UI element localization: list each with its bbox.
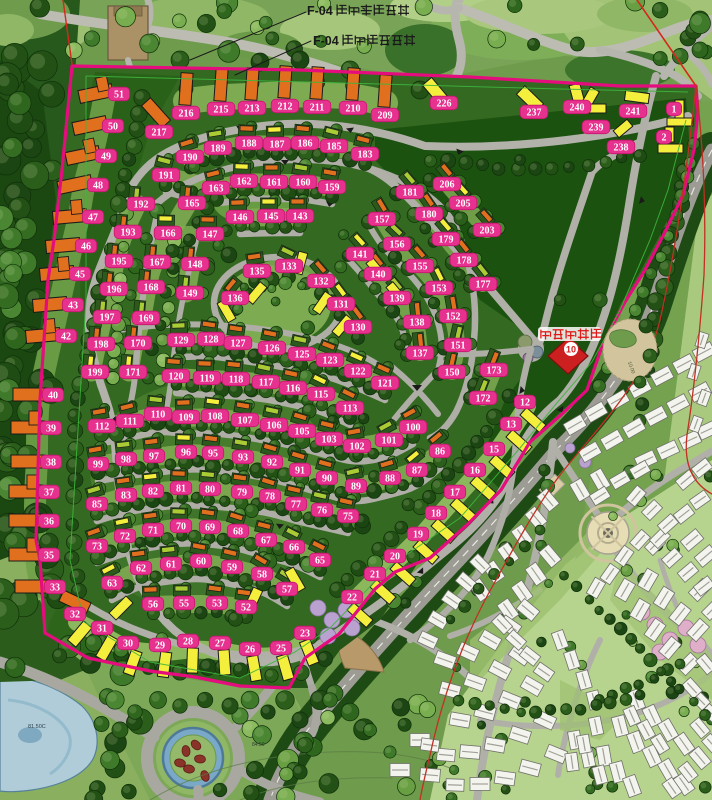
- svg-text:140: 140: [371, 269, 386, 280]
- svg-text:69: 69: [205, 522, 215, 533]
- svg-text:82: 82: [148, 486, 158, 497]
- svg-text:48: 48: [93, 180, 103, 191]
- svg-text:190: 190: [183, 152, 198, 163]
- svg-text:151: 151: [451, 340, 466, 351]
- svg-text:116: 116: [286, 383, 300, 394]
- svg-text:F-04: F-04: [307, 4, 333, 18]
- svg-text:213: 213: [245, 103, 260, 114]
- svg-text:156: 156: [390, 239, 405, 250]
- svg-text:123: 123: [323, 355, 338, 366]
- svg-text:197: 197: [100, 312, 115, 323]
- svg-text:30: 30: [123, 638, 133, 649]
- svg-text:91: 91: [295, 465, 305, 476]
- svg-text:110: 110: [151, 409, 165, 420]
- svg-text:35: 35: [44, 550, 54, 561]
- svg-text:50: 50: [108, 121, 118, 132]
- svg-text:37: 37: [44, 487, 54, 498]
- svg-text:189: 189: [211, 143, 226, 154]
- svg-text:29: 29: [155, 640, 165, 651]
- svg-text:141: 141: [353, 249, 368, 260]
- svg-text:117: 117: [259, 377, 273, 388]
- svg-text:17: 17: [450, 487, 460, 498]
- svg-text:20: 20: [390, 551, 400, 562]
- svg-text:168: 168: [144, 282, 159, 293]
- svg-text:F-04: F-04: [313, 34, 339, 48]
- svg-text:171: 171: [126, 367, 141, 378]
- svg-text:47: 47: [88, 212, 98, 223]
- svg-text:205: 205: [456, 198, 471, 209]
- svg-text:210: 210: [346, 103, 361, 114]
- svg-text:38: 38: [46, 457, 56, 468]
- svg-text:139: 139: [390, 293, 405, 304]
- svg-text:206: 206: [440, 179, 455, 190]
- svg-text:193: 193: [121, 227, 136, 238]
- svg-text:238: 238: [614, 142, 629, 153]
- svg-text:191: 191: [159, 170, 174, 181]
- svg-text:28: 28: [183, 636, 193, 647]
- svg-text:162: 162: [237, 176, 252, 187]
- svg-text:1: 1: [672, 104, 677, 115]
- svg-text:135: 135: [250, 266, 265, 277]
- svg-text:105: 105: [295, 426, 310, 437]
- svg-text:81: 81: [176, 483, 186, 494]
- svg-text:112: 112: [95, 421, 109, 432]
- svg-text:217: 217: [152, 127, 167, 138]
- svg-text:130: 130: [351, 322, 366, 333]
- svg-text:75: 75: [343, 511, 353, 522]
- svg-text:133: 133: [282, 261, 297, 272]
- svg-text:125: 125: [295, 349, 310, 360]
- svg-text:53: 53: [212, 598, 222, 609]
- svg-text:109: 109: [179, 412, 194, 423]
- svg-text:26: 26: [245, 644, 255, 655]
- svg-text:149: 149: [183, 288, 198, 299]
- svg-text:161: 161: [267, 177, 282, 188]
- svg-text:107: 107: [238, 415, 253, 426]
- svg-text:66: 66: [289, 542, 299, 553]
- svg-text:113: 113: [343, 403, 357, 414]
- svg-text:155: 155: [413, 261, 428, 272]
- svg-text:150: 150: [445, 367, 460, 378]
- svg-text:40: 40: [48, 390, 58, 401]
- svg-text:63: 63: [107, 578, 117, 589]
- svg-text:192: 192: [134, 199, 149, 210]
- svg-text:32: 32: [70, 609, 80, 620]
- svg-text:78: 78: [265, 491, 275, 502]
- svg-text:42: 42: [61, 331, 71, 342]
- svg-text:15: 15: [489, 444, 499, 455]
- svg-text:138: 138: [410, 317, 425, 328]
- svg-text:203: 203: [480, 225, 495, 236]
- svg-text:126: 126: [265, 343, 280, 354]
- svg-text:137: 137: [413, 348, 428, 359]
- svg-text:25: 25: [276, 643, 286, 654]
- svg-text:13: 13: [506, 419, 516, 430]
- svg-text:80: 80: [205, 484, 215, 495]
- svg-text:195: 195: [112, 256, 127, 267]
- svg-text:179: 179: [439, 234, 454, 245]
- svg-text:185: 185: [327, 141, 342, 152]
- svg-text:169: 169: [139, 313, 154, 324]
- svg-text:148: 148: [188, 259, 203, 270]
- svg-text:95: 95: [208, 448, 218, 459]
- svg-text:216: 216: [179, 108, 194, 119]
- svg-text:186: 186: [298, 138, 313, 149]
- svg-text:92: 92: [267, 457, 277, 468]
- svg-text:198: 198: [94, 339, 109, 350]
- svg-text:98: 98: [121, 454, 131, 465]
- svg-text:27: 27: [215, 638, 225, 649]
- svg-text:128: 128: [204, 334, 219, 345]
- svg-text:55: 55: [179, 598, 189, 609]
- svg-text:196: 196: [107, 284, 122, 295]
- svg-text:178: 178: [457, 255, 472, 266]
- svg-text:119: 119: [200, 373, 214, 384]
- svg-text:122: 122: [351, 366, 366, 377]
- svg-text:212: 212: [278, 101, 293, 112]
- svg-text:58: 58: [257, 569, 267, 580]
- svg-text:106: 106: [267, 420, 282, 431]
- svg-text:180: 180: [422, 209, 437, 220]
- svg-text:103: 103: [322, 434, 337, 445]
- svg-text:172: 172: [476, 393, 491, 404]
- svg-text:68: 68: [233, 526, 243, 537]
- svg-text:61: 61: [166, 559, 176, 570]
- svg-text:49: 49: [101, 151, 111, 162]
- svg-text:167: 167: [150, 257, 165, 268]
- svg-text:100: 100: [406, 422, 421, 433]
- svg-text:145: 145: [264, 211, 279, 222]
- svg-text:2: 2: [662, 132, 667, 143]
- svg-text:93: 93: [238, 452, 248, 463]
- svg-text:31: 31: [97, 623, 107, 634]
- svg-text:99: 99: [93, 459, 103, 470]
- svg-text:132: 132: [314, 276, 329, 287]
- svg-text:59: 59: [227, 562, 237, 573]
- svg-text:163: 163: [209, 183, 224, 194]
- svg-text:237: 237: [527, 107, 542, 118]
- svg-text:86: 86: [435, 446, 445, 457]
- svg-text:72: 72: [120, 531, 130, 542]
- svg-text:170: 170: [131, 338, 146, 349]
- svg-text:183: 183: [358, 149, 373, 160]
- svg-text:131: 131: [334, 299, 349, 310]
- svg-text:84.50: 84.50: [252, 742, 265, 748]
- svg-text:70: 70: [176, 521, 186, 532]
- svg-text:136: 136: [228, 293, 243, 304]
- svg-text:143: 143: [293, 211, 308, 222]
- svg-text:89: 89: [351, 481, 361, 492]
- svg-text:159: 159: [325, 182, 340, 193]
- svg-text:177: 177: [476, 279, 491, 290]
- svg-text:127: 127: [231, 338, 246, 349]
- svg-text:121: 121: [378, 378, 393, 389]
- svg-text:108: 108: [208, 411, 223, 422]
- svg-text:79: 79: [237, 487, 247, 498]
- svg-text:101: 101: [382, 435, 397, 446]
- svg-text:152: 152: [446, 311, 461, 322]
- svg-text:12: 12: [520, 397, 530, 408]
- svg-text:10: 10: [566, 345, 576, 355]
- svg-text:181: 181: [403, 187, 418, 198]
- svg-text:226: 226: [437, 98, 452, 109]
- svg-text:157: 157: [375, 214, 390, 225]
- svg-text:111: 111: [123, 416, 137, 427]
- svg-text:165: 165: [185, 198, 200, 209]
- svg-text:39: 39: [46, 423, 56, 434]
- svg-text:65: 65: [315, 555, 325, 566]
- svg-text:241: 241: [626, 106, 641, 117]
- svg-text:187: 187: [270, 139, 285, 150]
- svg-text:21: 21: [370, 569, 380, 580]
- svg-text:62: 62: [136, 563, 146, 574]
- svg-text:45: 45: [75, 269, 85, 280]
- svg-text:215: 215: [214, 104, 229, 115]
- svg-text:115: 115: [314, 389, 328, 400]
- svg-text:36: 36: [44, 516, 54, 527]
- svg-text:56: 56: [148, 599, 158, 610]
- svg-text:160: 160: [296, 177, 311, 188]
- svg-text:85: 85: [92, 499, 102, 510]
- svg-text:240: 240: [570, 102, 585, 113]
- svg-text:51: 51: [114, 89, 124, 100]
- svg-text:22: 22: [347, 592, 357, 603]
- svg-text:87: 87: [412, 465, 422, 476]
- svg-text:43: 43: [68, 300, 78, 311]
- svg-text:97: 97: [149, 451, 159, 462]
- svg-text:153: 153: [432, 283, 447, 294]
- svg-text:120: 120: [169, 371, 184, 382]
- svg-text:19: 19: [413, 529, 423, 540]
- svg-text:211: 211: [310, 102, 324, 113]
- svg-text:166: 166: [161, 228, 176, 239]
- svg-text:102: 102: [350, 441, 365, 452]
- svg-text:23: 23: [300, 628, 310, 639]
- svg-text:67: 67: [261, 535, 271, 546]
- svg-text:16: 16: [470, 465, 480, 476]
- svg-text:129: 129: [174, 335, 189, 346]
- svg-text:81.50C: 81.50C: [28, 724, 46, 730]
- svg-text:146: 146: [233, 212, 248, 223]
- svg-text:73: 73: [92, 541, 102, 552]
- svg-text:90: 90: [322, 473, 332, 484]
- svg-text:60: 60: [196, 556, 206, 567]
- svg-text:76: 76: [317, 505, 327, 516]
- svg-text:33: 33: [50, 582, 60, 593]
- svg-text:18: 18: [431, 508, 441, 519]
- svg-text:209: 209: [378, 110, 393, 121]
- svg-text:71: 71: [148, 525, 158, 536]
- svg-text:96: 96: [181, 447, 191, 458]
- svg-text:173: 173: [487, 365, 502, 376]
- svg-text:57: 57: [282, 584, 292, 595]
- svg-text:83: 83: [121, 490, 131, 501]
- svg-text:239: 239: [589, 122, 604, 133]
- svg-text:147: 147: [203, 229, 218, 240]
- svg-text:118: 118: [229, 374, 243, 385]
- svg-text:199: 199: [88, 367, 103, 378]
- svg-text:52: 52: [241, 602, 251, 613]
- svg-text:46: 46: [81, 241, 91, 252]
- svg-text:88: 88: [385, 473, 395, 484]
- svg-text:77: 77: [291, 499, 301, 510]
- svg-text:188: 188: [242, 138, 257, 149]
